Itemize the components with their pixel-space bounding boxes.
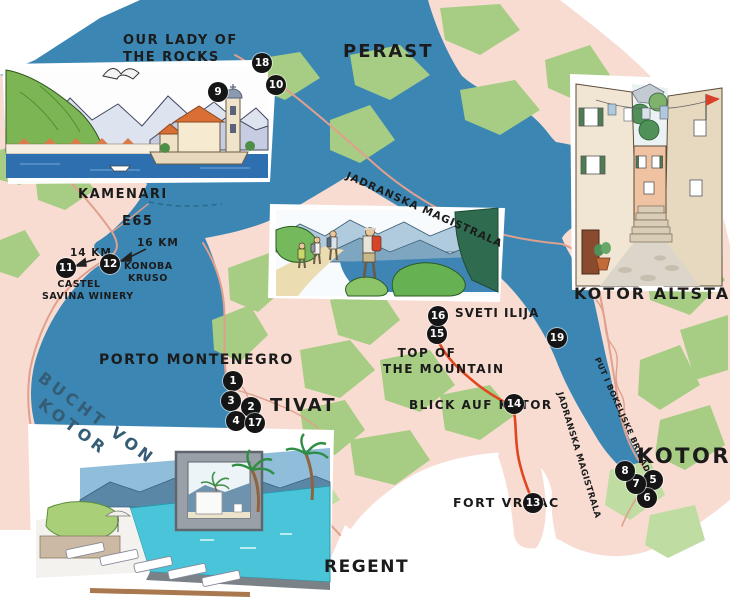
map-marker-3[interactable]: 3 xyxy=(221,391,241,411)
map-marker-14[interactable]: 14 xyxy=(504,394,524,414)
e65-road-label: E65 xyxy=(122,214,153,231)
our-lady-illustration xyxy=(2,60,275,184)
perast-label: PERAST xyxy=(343,40,434,63)
map-marker-5[interactable]: 5 xyxy=(643,470,663,490)
fort-vrmac-label: FORT VRMAC xyxy=(453,495,560,511)
map-marker-8[interactable]: 8 xyxy=(615,461,635,481)
map-marker-10[interactable]: 10 xyxy=(266,75,286,95)
distance-16km-label: 16 KM xyxy=(137,237,179,251)
map-marker-1[interactable]: 1 xyxy=(223,371,243,391)
porto-montenegro-label: PORTO MONTENEGRO xyxy=(99,351,294,369)
map-marker-12[interactable]: 12 xyxy=(100,254,120,274)
map-marker-19[interactable]: 19 xyxy=(547,328,567,348)
kotor-alley-illustration xyxy=(570,74,726,292)
map-marker-18[interactable]: 18 xyxy=(252,53,272,73)
castel-savina-label: CASTEL SAVINA WINERY xyxy=(42,279,116,304)
top-of-the-mountain-label: TOP OF THE MOUNTAIN xyxy=(383,346,471,377)
our-lady-label: OUR LADY OF THE ROCKS xyxy=(123,33,238,67)
kamenari-label: KAMENARI xyxy=(78,187,168,204)
blick-auf-kotor-label: BLICK AUF KOTOR xyxy=(409,398,553,414)
map-marker-15[interactable]: 15 xyxy=(427,324,447,344)
tivat-label: TIVAT xyxy=(270,394,337,417)
regent-resort-illustration xyxy=(28,424,334,597)
sveti-ilija-label: SVETI ILIJA xyxy=(455,306,539,322)
konoba-kruso-label: KONOBA KRUSO xyxy=(124,261,173,286)
map-marker-11[interactable]: 11 xyxy=(56,258,76,278)
map-marker-9[interactable]: 9 xyxy=(208,82,228,102)
regent-label: REGENT xyxy=(324,556,409,578)
hikers-illustration xyxy=(268,204,505,302)
map-marker-17[interactable]: 17 xyxy=(245,413,265,433)
kotor-altstadt-label: KOTOR ALTSTADT xyxy=(574,284,730,305)
bay-of-kotor-map: OUR LADY OF THE ROCKS PERAST KAMENARI E6… xyxy=(0,0,730,600)
map-marker-4[interactable]: 4 xyxy=(226,411,246,431)
map-marker-16[interactable]: 16 xyxy=(428,306,448,326)
map-marker-13[interactable]: 13 xyxy=(523,493,543,513)
kotor-label: KOTOR xyxy=(637,443,730,470)
